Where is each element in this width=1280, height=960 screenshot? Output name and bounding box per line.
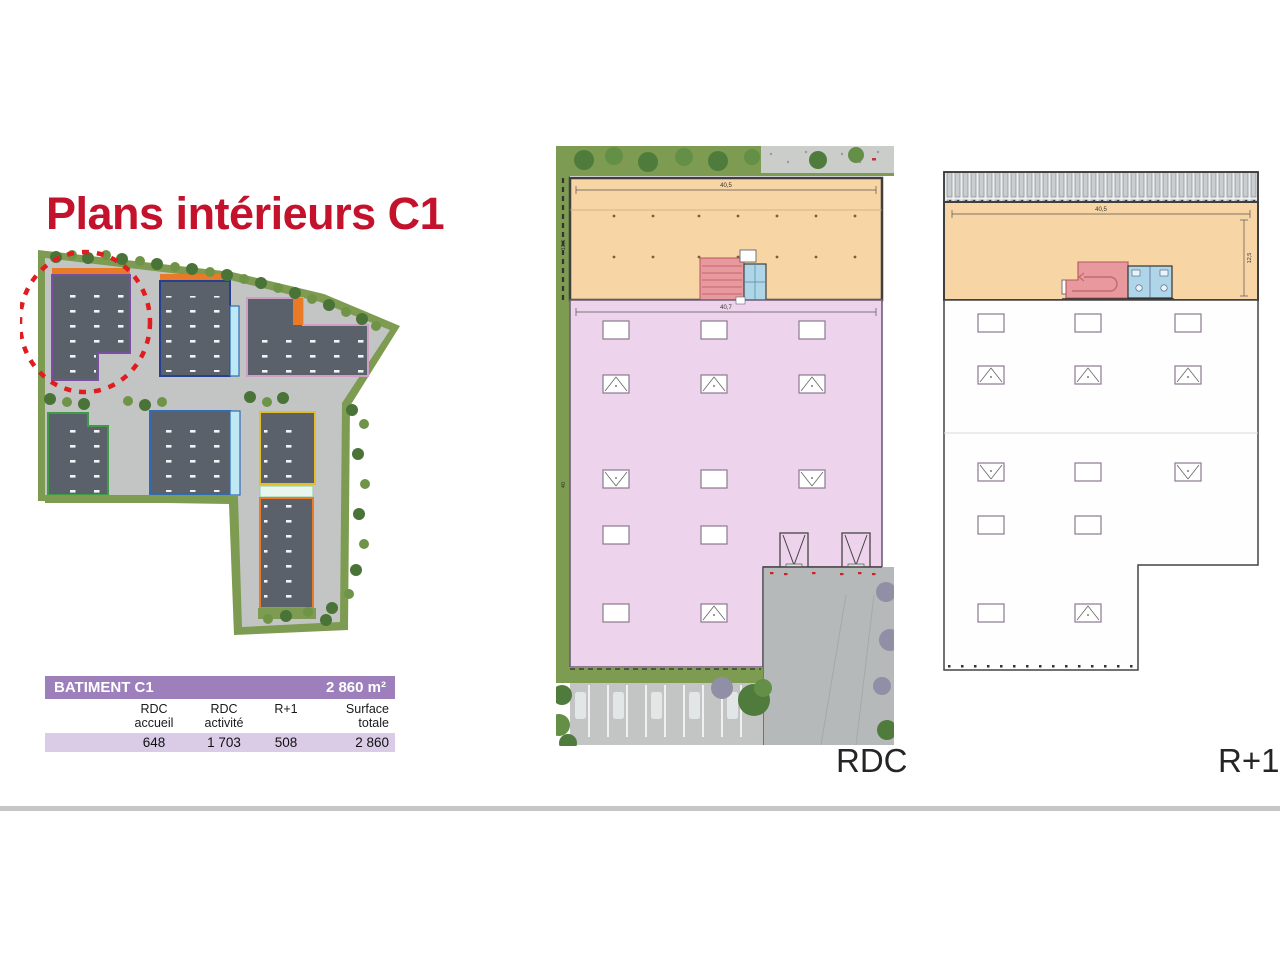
svg-text:40,7: 40,7 [720,305,732,311]
building-7 [258,498,316,619]
svg-text:12,5: 12,5 [1247,253,1253,264]
val-rdc-activite: 1 703 [191,735,257,750]
bottom-divider [0,806,1280,811]
green-strip [45,495,238,503]
val-r1: 508 [257,735,315,750]
r1-floor-plan: 40,5 12,5 [938,168,1264,674]
rdc-floor-plan: 40,5 12,5 40,7 40 [556,140,894,746]
col-r1: R+1 [257,702,315,731]
rdc-label: RDC [836,742,908,780]
r1-label: R+1 [1218,742,1279,780]
rdc-parking [570,683,763,745]
surface-table: BATIMENT C1 2 860 m² RDC accueil RDC act… [45,676,395,752]
rdc-bottom-green [556,667,763,683]
col-rdc-accueil: RDC accueil [117,702,191,731]
building-4 [48,413,108,495]
rdc-courtyard [763,567,894,745]
col-surface-totale: Surface totale [315,702,395,731]
page-title: Plans intérieurs C1 [46,188,444,240]
svg-text:40,5: 40,5 [1095,207,1107,213]
slide: Plans intérieurs C1 [0,0,1280,960]
r1-stair-block [1062,262,1174,299]
surface-table-columns: RDC accueil RDC activité R+1 Surface tot… [45,699,395,733]
val-rdc-accueil: 648 [117,735,191,750]
r1-roof-band [944,172,1258,202]
svg-text:40: 40 [561,482,567,488]
surface-table-values: 648 1 703 508 2 860 [45,733,395,752]
total-area: 2 860 m² [326,679,386,696]
rdc-stair-block [700,250,766,300]
r1-bottom-ticks [948,665,1133,668]
building-6 [260,412,315,497]
val-surface-totale: 2 860 [315,735,395,750]
building-name: BATIMENT C1 [54,679,154,696]
building-5 [150,411,240,495]
svg-text:40,5: 40,5 [720,183,732,189]
col-rdc-activite: RDC activité [191,702,257,731]
surface-table-header: BATIMENT C1 2 860 m² [45,676,395,699]
svg-text:12,5: 12,5 [561,240,567,251]
site-plan [20,248,400,660]
building-2 [160,274,239,376]
